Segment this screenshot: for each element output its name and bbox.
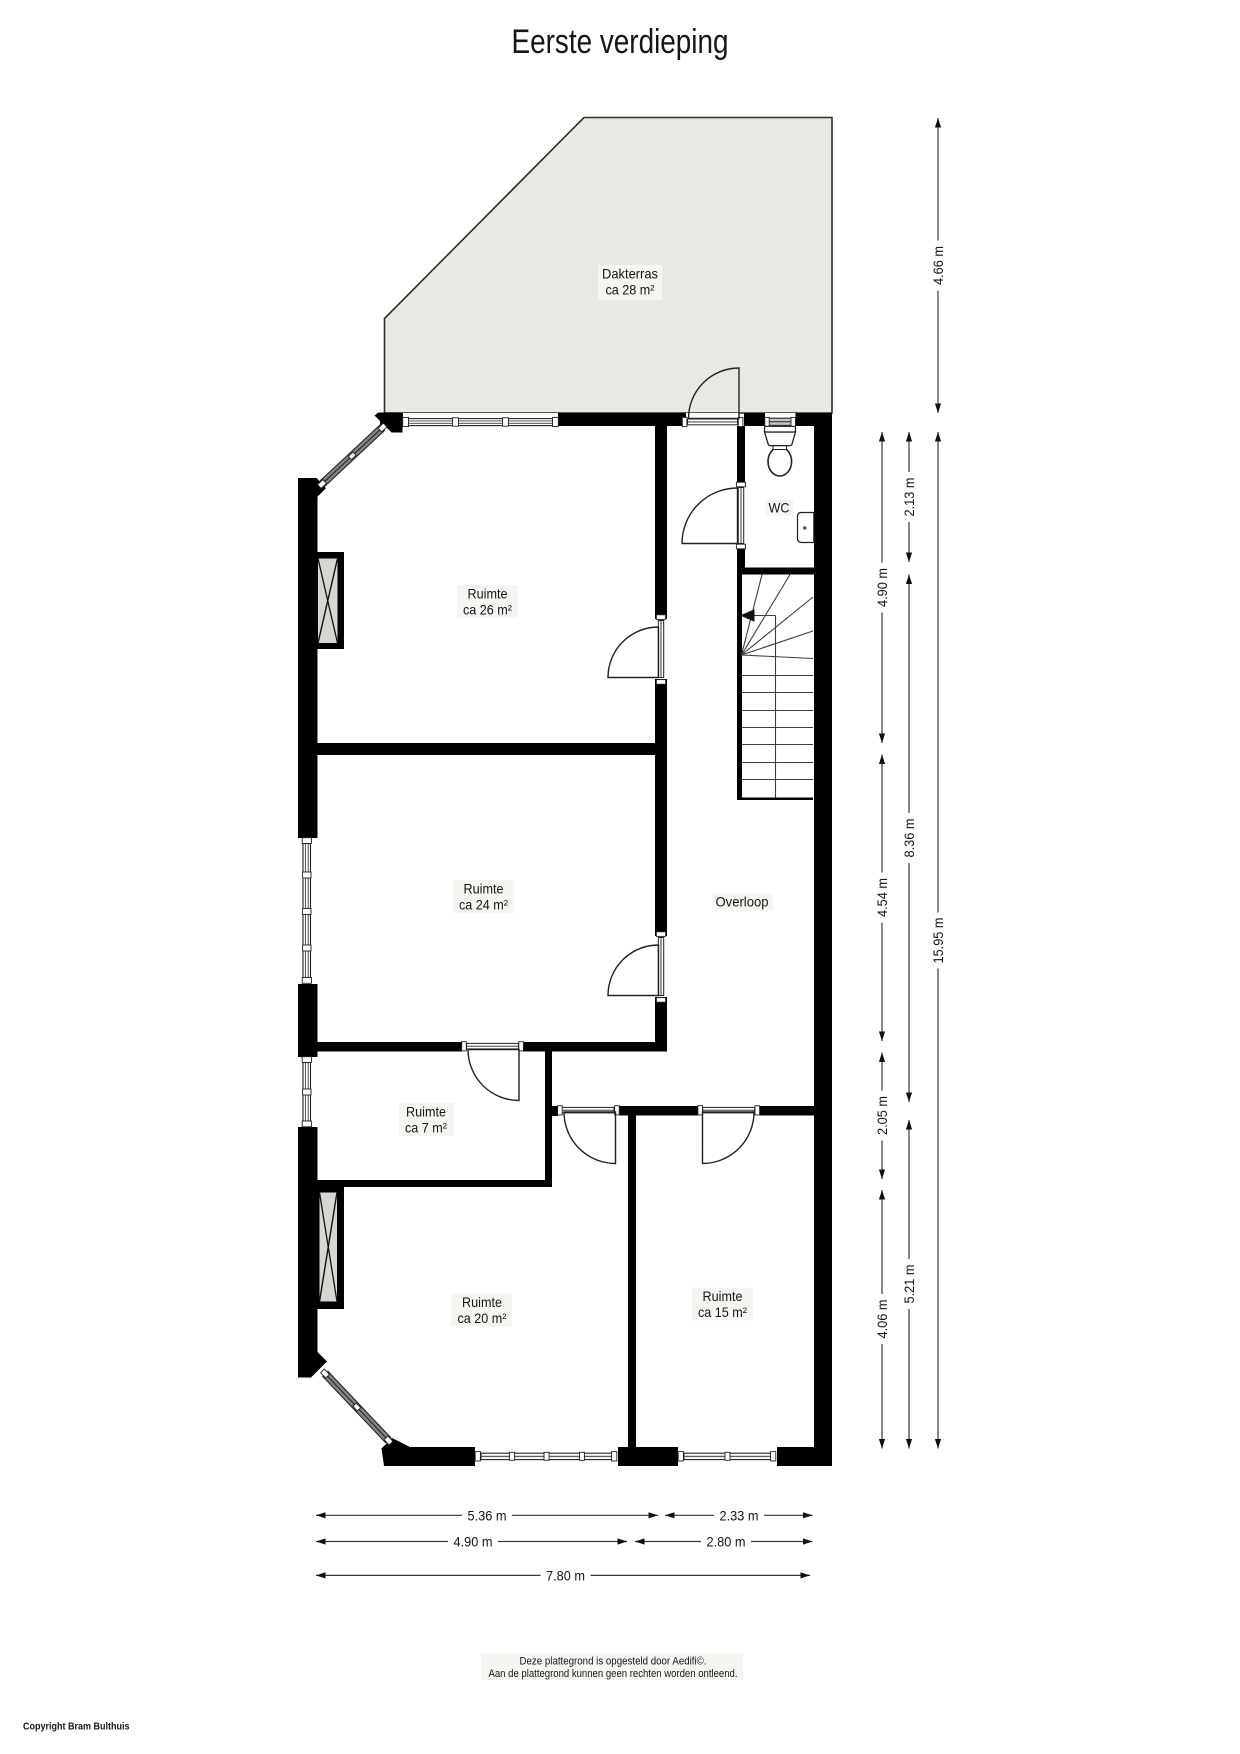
svg-text:2.13 m: 2.13 m <box>901 478 917 517</box>
svg-text:ca 24 m²: ca 24 m² <box>459 897 508 913</box>
svg-text:ca 20 m²: ca 20 m² <box>458 1310 507 1326</box>
svg-text:5.36 m: 5.36 m <box>468 1507 507 1523</box>
svg-text:4.54 m: 4.54 m <box>874 878 890 917</box>
svg-text:Aan de plattegrond kunnen geen: Aan de plattegrond kunnen geen rechten w… <box>489 1668 738 1680</box>
svg-text:5.21 m: 5.21 m <box>901 1265 917 1304</box>
svg-text:ca 26 m²: ca 26 m² <box>463 602 512 618</box>
svg-text:4.90 m: 4.90 m <box>454 1534 493 1550</box>
svg-text:Deze plattegrond is opgesteld: Deze plattegrond is opgesteld door Aedif… <box>520 1656 707 1668</box>
svg-text:Eerste verdieping: Eerste verdieping <box>512 23 729 61</box>
svg-text:7.80 m: 7.80 m <box>546 1567 585 1583</box>
svg-text:Copyright Bram Bulthuis: Copyright Bram Bulthuis <box>23 1722 130 1733</box>
svg-text:Dakterras: Dakterras <box>602 266 658 282</box>
svg-text:Ruimte: Ruimte <box>703 1288 743 1304</box>
svg-text:2.80 m: 2.80 m <box>707 1534 746 1550</box>
svg-text:4.90 m: 4.90 m <box>874 568 890 607</box>
svg-text:15.95 m: 15.95 m <box>930 918 946 964</box>
svg-text:4.66 m: 4.66 m <box>930 246 946 285</box>
svg-text:Overloop: Overloop <box>716 894 769 910</box>
svg-text:ca 7 m²: ca 7 m² <box>405 1120 447 1136</box>
svg-text:8.36 m: 8.36 m <box>901 819 917 858</box>
svg-text:WC: WC <box>769 500 790 516</box>
svg-text:4.06 m: 4.06 m <box>874 1300 890 1339</box>
svg-text:ca 15 m²: ca 15 m² <box>698 1304 747 1320</box>
svg-text:ca 28 m²: ca 28 m² <box>606 282 655 298</box>
svg-text:2.05 m: 2.05 m <box>874 1096 890 1135</box>
svg-text:Ruimte: Ruimte <box>462 1294 502 1310</box>
svg-text:Ruimte: Ruimte <box>464 881 504 897</box>
svg-text:Ruimte: Ruimte <box>468 586 508 602</box>
svg-text:Ruimte: Ruimte <box>406 1104 446 1120</box>
svg-text:2.33 m: 2.33 m <box>720 1507 759 1523</box>
